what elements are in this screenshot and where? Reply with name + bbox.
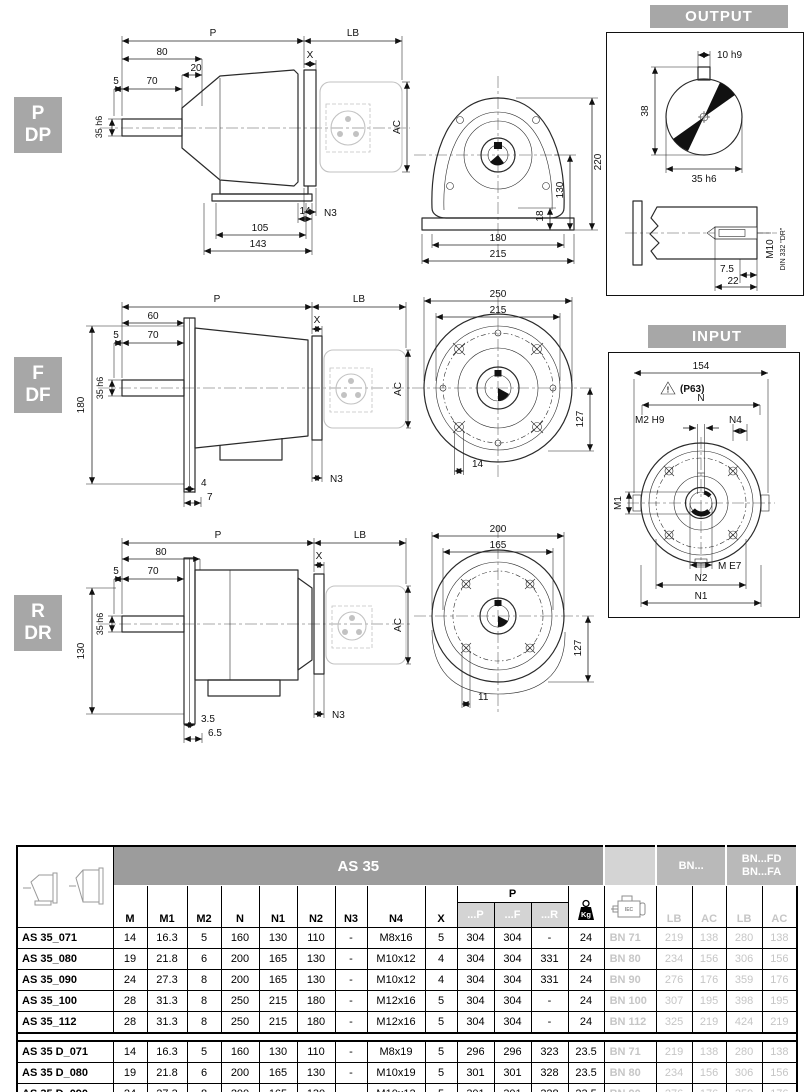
dim-label: M2 H9 (635, 415, 665, 426)
value-cell: 304 (457, 991, 494, 1012)
input-band: INPUT (648, 325, 786, 348)
dim-label: 35 h6 (94, 116, 104, 139)
dim-label: DIN 332 "DR" (780, 227, 787, 270)
value-cell: 234 (656, 1063, 692, 1084)
value-cell: 8 (187, 1084, 221, 1092)
output-drawing: 10 h9 38 35 h6 7.5 22 M10 DIN 332 "DR" (607, 33, 799, 291)
col-header-X: X (425, 886, 457, 928)
dim-label: 70 (147, 330, 159, 341)
value-cell: 176 (692, 970, 726, 991)
dimension-table: AS 35 BN... BN...FD BN...FA M M1 M2 N N1… (16, 845, 798, 1092)
value-cell: 331 (531, 949, 568, 970)
rdr-front-drawing: 200 165 127 11 (398, 512, 605, 724)
value-cell: 16.3 (147, 1041, 187, 1063)
value-cell: M10x12 (367, 949, 425, 970)
dim-label: N (697, 393, 704, 404)
value-cell: 304 (494, 949, 531, 970)
value-cell: 219 (656, 1041, 692, 1063)
value-cell: 138 (762, 928, 797, 949)
section-label-line: DF (25, 385, 50, 407)
section-label-line: R (31, 601, 45, 623)
motor-name-cell: BN 90 (604, 970, 656, 991)
gearbox-icon (21, 862, 109, 910)
value-cell: 304 (457, 949, 494, 970)
value-cell: - (335, 928, 367, 949)
value-cell: 200 (221, 1084, 259, 1092)
value-cell: 130 (259, 1041, 297, 1063)
dim-label: 105 (252, 223, 269, 234)
col-header-dotR: ...R (531, 903, 568, 928)
gearbox-body (122, 70, 316, 201)
value-cell: - (335, 1041, 367, 1063)
dimensions: P LB 80 20 X 5 70 35 h6 AC N3 14 (94, 28, 410, 255)
col-header-dotP: ...P (457, 903, 494, 928)
value-cell: M10x19 (367, 1063, 425, 1084)
value-cell: 23.5 (568, 1084, 604, 1092)
dim-label: 38 (640, 105, 651, 117)
motor-icon: IEC (604, 886, 656, 928)
value-cell: 328 (531, 1063, 568, 1084)
dim-label: 5 (113, 76, 119, 87)
dim-label: P (214, 294, 221, 305)
dim-label: M10 (765, 239, 776, 259)
dim-label: N4 (729, 415, 742, 426)
dim-label: 22 (727, 276, 739, 287)
value-cell: - (531, 928, 568, 949)
col-header-M: M (113, 886, 147, 928)
flange (432, 550, 565, 694)
value-cell: 24 (568, 970, 604, 991)
value-cell: 138 (692, 928, 726, 949)
dim-label: 80 (156, 47, 168, 58)
dimensions: 250 215 127 14 (424, 289, 594, 475)
value-cell: 215 (259, 991, 297, 1012)
section-label-line: DP (25, 125, 51, 147)
value-cell: - (531, 991, 568, 1012)
value-cell: 331 (531, 970, 568, 991)
dim-label: 180 (490, 233, 507, 244)
dimensions: 220 130 18 180 215 (422, 98, 604, 264)
value-cell: 130 (297, 970, 335, 991)
value-cell: 195 (762, 991, 797, 1012)
dim-label: 70 (146, 76, 158, 87)
value-cell: 5 (425, 1063, 457, 1084)
value-cell: 304 (494, 1012, 531, 1034)
dim-label: 35 h6 (95, 613, 105, 636)
value-cell: 156 (762, 949, 797, 970)
section-label-fdf: F DF (14, 357, 62, 413)
value-cell: 110 (297, 928, 335, 949)
value-cell: 4 (425, 970, 457, 991)
input-band-label: INPUT (692, 328, 742, 345)
dim-label: 200 (490, 524, 507, 535)
value-cell: 5 (187, 1041, 221, 1063)
value-cell: 219 (762, 1012, 797, 1034)
shaft-section-view (625, 201, 777, 265)
value-cell: 156 (762, 1063, 797, 1084)
value-cell: 296 (494, 1041, 531, 1063)
dim-label: 165 (490, 540, 507, 551)
table-title: AS 35 (113, 846, 604, 886)
value-cell: - (335, 991, 367, 1012)
value-cell: 160 (221, 1041, 259, 1063)
value-cell: 138 (762, 1041, 797, 1063)
dim-label: 35 h6 (691, 174, 716, 185)
table-body: AS 35_0711416.35160130110-M8x165304304-2… (17, 928, 797, 1092)
value-cell: M12x16 (367, 991, 425, 1012)
value-cell: 31.3 (147, 1012, 187, 1034)
dim-label: P (215, 530, 222, 541)
pdp-side-drawing: P LB 80 20 X 5 70 35 h6 AC N3 14 (70, 16, 414, 266)
value-cell: 24 (568, 991, 604, 1012)
value-cell: M10x12 (367, 1084, 425, 1092)
value-cell: 5 (425, 991, 457, 1012)
dim-label: M E7 (718, 561, 742, 572)
dim-label: N1 (695, 591, 708, 602)
value-cell: 301 (494, 1084, 531, 1092)
section-label-line: DR (24, 623, 51, 645)
value-cell: 24 (568, 949, 604, 970)
value-cell: 304 (494, 928, 531, 949)
dim-label: 154 (693, 361, 710, 372)
dim-label: P (210, 28, 217, 39)
output-band: OUTPUT (650, 5, 788, 28)
dim-label: N2 (695, 573, 708, 584)
col-header-N3: N3 (335, 886, 367, 928)
dim-label: 14 (472, 459, 484, 470)
value-cell: 27.3 (147, 970, 187, 991)
value-cell: 24 (568, 1012, 604, 1034)
table-row: AS 35 D_0711416.35160130110-M8x195296296… (17, 1041, 797, 1063)
gearbox-body (122, 558, 324, 724)
value-cell: 301 (457, 1063, 494, 1084)
fdf-side-drawing: P LB 60 X 5 70 35 h6 180 AC N3 4 7 (70, 282, 414, 510)
value-cell: - (335, 1012, 367, 1034)
dim-label: 215 (490, 249, 507, 260)
value-cell: 28 (113, 1012, 147, 1034)
value-cell: 165 (259, 949, 297, 970)
value-cell: 23.5 (568, 1041, 604, 1063)
dim-label: N3 (330, 474, 343, 485)
section-label-line: F (32, 363, 44, 385)
value-cell: 250 (221, 1012, 259, 1034)
gearbox-body (122, 318, 322, 492)
value-cell: 31.3 (147, 991, 187, 1012)
value-cell: 304 (457, 1012, 494, 1034)
input-box: 154 ! (P63) N M2 H9 N4 (608, 352, 800, 618)
value-cell: 304 (494, 970, 531, 991)
value-cell: 24 (568, 928, 604, 949)
value-cell: 138 (692, 1041, 726, 1063)
dim-label: 3.5 (201, 714, 215, 725)
value-cell: 359 (726, 1084, 762, 1092)
value-cell: 8 (187, 1012, 221, 1034)
value-cell: 130 (297, 1084, 335, 1092)
value-cell: 14 (113, 928, 147, 949)
motor-name-cell: BN 80 (604, 1063, 656, 1084)
value-cell: 156 (692, 949, 726, 970)
dim-label: LB (353, 294, 366, 305)
model-cell: AS 35 D_071 (17, 1041, 113, 1063)
value-cell: 14 (113, 1041, 147, 1063)
value-cell: - (335, 949, 367, 970)
value-cell: 5 (187, 928, 221, 949)
value-cell: - (335, 1063, 367, 1084)
fdf-front-drawing: 250 215 127 14 (398, 281, 605, 488)
dim-label: 14 (299, 206, 311, 217)
dim-label: X (316, 551, 323, 562)
value-cell: 8 (187, 970, 221, 991)
value-cell: M8x16 (367, 928, 425, 949)
dim-label: 70 (147, 566, 159, 577)
value-cell: 301 (494, 1063, 531, 1084)
value-cell: 304 (494, 991, 531, 1012)
dim-label: 7.5 (720, 264, 734, 275)
table-row: AS 35_0902427.38200165130-M10x1243043043… (17, 970, 797, 991)
warning-icon: ! (667, 386, 670, 395)
dim-label: 130 (555, 181, 566, 198)
dim-label: 35 h6 (95, 377, 105, 400)
value-cell: 165 (259, 1084, 297, 1092)
bn-group-header: BN... (656, 846, 726, 886)
value-cell: 180 (297, 991, 335, 1012)
col-header-AC: AC (692, 886, 726, 928)
value-cell: 219 (692, 1012, 726, 1034)
bnfd-line: BN...FA (728, 866, 795, 879)
value-cell: - (335, 1084, 367, 1092)
dim-label: N3 (332, 710, 345, 721)
motor-name-cell: BN 100 (604, 991, 656, 1012)
value-cell: 165 (259, 1063, 297, 1084)
value-cell: 130 (297, 1063, 335, 1084)
value-cell: 276 (656, 970, 692, 991)
dim-label: 80 (155, 547, 167, 558)
table-row: AS 35_1122831.38250215180-M12x165304304-… (17, 1012, 797, 1034)
dim-label: M1 (613, 496, 624, 510)
col-header-M1: M1 (147, 886, 187, 928)
value-cell: 219 (656, 928, 692, 949)
group-separator (17, 1033, 797, 1041)
col-header-N4: N4 (367, 886, 425, 928)
motor-name-cell: BN 90 (604, 1084, 656, 1092)
value-cell: 200 (221, 949, 259, 970)
col-header-M2: M2 (187, 886, 221, 928)
input-drawing: 154 ! (P63) N M2 H9 N4 (609, 353, 795, 613)
value-cell: 21.8 (147, 1063, 187, 1084)
dim-label: 4 (201, 478, 207, 489)
table-row: AS 35 D_0902427.38200165130-M10x12530130… (17, 1084, 797, 1092)
output-band-label: OUTPUT (685, 8, 753, 25)
value-cell: 180 (297, 1012, 335, 1034)
p-group-header: P (457, 886, 568, 903)
motor-name-cell: BN 80 (604, 949, 656, 970)
col-header-N1: N1 (259, 886, 297, 928)
value-cell: 130 (297, 949, 335, 970)
value-cell: 304 (457, 970, 494, 991)
value-cell: 296 (457, 1041, 494, 1063)
value-cell: 5 (425, 1084, 457, 1092)
bnfd-group-header: BN...FD BN...FA (726, 846, 797, 886)
value-cell: 306 (726, 1063, 762, 1084)
dim-label: 143 (250, 239, 267, 250)
col-header-AC2: AC (762, 886, 797, 928)
motor-column-band (604, 846, 656, 886)
value-cell: 4 (425, 949, 457, 970)
value-cell: 160 (221, 928, 259, 949)
value-cell: 359 (726, 970, 762, 991)
dim-label: 60 (147, 311, 159, 322)
col-header-N2: N2 (297, 886, 335, 928)
value-cell: 24 (113, 1084, 147, 1092)
value-cell: 5 (425, 1041, 457, 1063)
value-cell: 21.8 (147, 949, 187, 970)
value-cell: 16.3 (147, 928, 187, 949)
model-cell: AS 35_080 (17, 949, 113, 970)
dim-label: 20 (190, 63, 202, 74)
model-cell: AS 35 D_090 (17, 1084, 113, 1092)
value-cell: 19 (113, 1063, 147, 1084)
dim-label: 215 (490, 305, 507, 316)
dim-label: 127 (575, 410, 586, 427)
value-cell: 328 (531, 1084, 568, 1092)
table-row: AS 35 D_0801921.86200165130-M10x19530130… (17, 1063, 797, 1084)
value-cell: 304 (457, 928, 494, 949)
value-cell: M8x19 (367, 1041, 425, 1063)
value-cell: 280 (726, 1041, 762, 1063)
value-cell: 6 (187, 1063, 221, 1084)
value-cell: 176 (762, 1084, 797, 1092)
dim-label: 180 (76, 396, 87, 413)
value-cell: 19 (113, 949, 147, 970)
dim-label: X (314, 315, 321, 326)
model-cell: AS 35_112 (17, 1012, 113, 1034)
value-cell: 280 (726, 928, 762, 949)
catalog-page: P DP F DF R DR P LB 80 20 X (0, 0, 810, 1092)
value-cell: 250 (221, 991, 259, 1012)
dim-label: 250 (490, 289, 507, 300)
dim-label: N3 (324, 208, 337, 219)
motor-name-cell: BN 71 (604, 1041, 656, 1063)
value-cell: M12x16 (367, 1012, 425, 1034)
dim-label: 18 (535, 210, 546, 222)
table-row: AS 35_0801921.86200165130-M10x1243043043… (17, 949, 797, 970)
value-cell: 5 (425, 1012, 457, 1034)
value-cell: 176 (762, 970, 797, 991)
dim-label: 5 (113, 330, 119, 341)
value-cell: 195 (692, 991, 726, 1012)
table-row: AS 35_0711416.35160130110-M8x165304304-2… (17, 928, 797, 949)
value-cell: 28 (113, 991, 147, 1012)
weight-icon: Kg (568, 886, 604, 928)
col-header-dotF: ...F (494, 903, 531, 928)
section-label-pdp: P DP (14, 97, 62, 153)
value-cell: M10x12 (367, 970, 425, 991)
value-cell: 301 (457, 1084, 494, 1092)
pdp-front-drawing: 220 130 18 180 215 (398, 58, 610, 278)
value-cell: 234 (656, 949, 692, 970)
col-header-LB2: LB (726, 886, 762, 928)
dim-label: X (307, 50, 314, 61)
dim-label: 6.5 (208, 728, 222, 739)
rdr-side-drawing: P LB 80 X 5 70 35 h6 130 AC N3 3.5 (70, 518, 414, 746)
dim-label: 127 (573, 639, 584, 656)
motor-ghost (320, 82, 402, 172)
value-cell: 215 (259, 1012, 297, 1034)
value-cell: 6 (187, 949, 221, 970)
value-cell: 8 (187, 991, 221, 1012)
value-cell: 130 (259, 928, 297, 949)
motor-name-cell: BN 112 (604, 1012, 656, 1034)
kg-label: Kg (581, 910, 591, 919)
value-cell: 176 (692, 1084, 726, 1092)
dim-label: LB (354, 530, 367, 541)
model-cell: AS 35_071 (17, 928, 113, 949)
dim-label: 220 (593, 153, 604, 170)
value-cell: 110 (297, 1041, 335, 1063)
dim-label: 10 h9 (717, 50, 742, 61)
value-cell: - (335, 970, 367, 991)
value-cell: 323 (531, 1041, 568, 1063)
section-label-rdr: R DR (14, 595, 62, 651)
value-cell: - (531, 1012, 568, 1034)
bnfd-line: BN...FD (728, 853, 795, 866)
dimension-table-wrap: AS 35 BN... BN...FD BN...FA M M1 M2 N N1… (16, 845, 798, 1092)
value-cell: 165 (259, 970, 297, 991)
section-label-line: P (32, 103, 45, 125)
value-cell: 24 (113, 970, 147, 991)
dim-label: 130 (76, 642, 87, 659)
output-box: 10 h9 38 35 h6 7.5 22 M10 DIN 332 "DR" (606, 32, 804, 296)
flange (424, 314, 572, 462)
table-row: AS 35_1002831.38250215180-M12x165304304-… (17, 991, 797, 1012)
model-cell: AS 35_100 (17, 991, 113, 1012)
corner-gearbox-icons (17, 846, 113, 928)
dim-label: 11 (478, 692, 489, 703)
value-cell: 200 (221, 1063, 259, 1084)
value-cell: 325 (656, 1012, 692, 1034)
model-cell: AS 35 D_080 (17, 1063, 113, 1084)
dim-label: LB (347, 28, 360, 39)
value-cell: 398 (726, 991, 762, 1012)
value-cell: 276 (656, 1084, 692, 1092)
value-cell: 27.3 (147, 1084, 187, 1092)
col-header-LB: LB (656, 886, 692, 928)
shaft-end-view (666, 67, 742, 155)
dim-label: 7 (207, 492, 213, 503)
value-cell: 156 (692, 1063, 726, 1084)
model-cell: AS 35_090 (17, 970, 113, 991)
input-flange (627, 437, 775, 575)
dim-label: 5 (113, 566, 119, 577)
value-cell: 200 (221, 970, 259, 991)
value-cell: 424 (726, 1012, 762, 1034)
value-cell: 5 (425, 928, 457, 949)
value-cell: 306 (726, 949, 762, 970)
motor-name-cell: BN 71 (604, 928, 656, 949)
dimensions: 10 h9 38 35 h6 (640, 50, 742, 185)
col-header-N: N (221, 886, 259, 928)
value-cell: 307 (656, 991, 692, 1012)
iec-label: IEC (625, 907, 634, 913)
value-cell: 23.5 (568, 1063, 604, 1084)
